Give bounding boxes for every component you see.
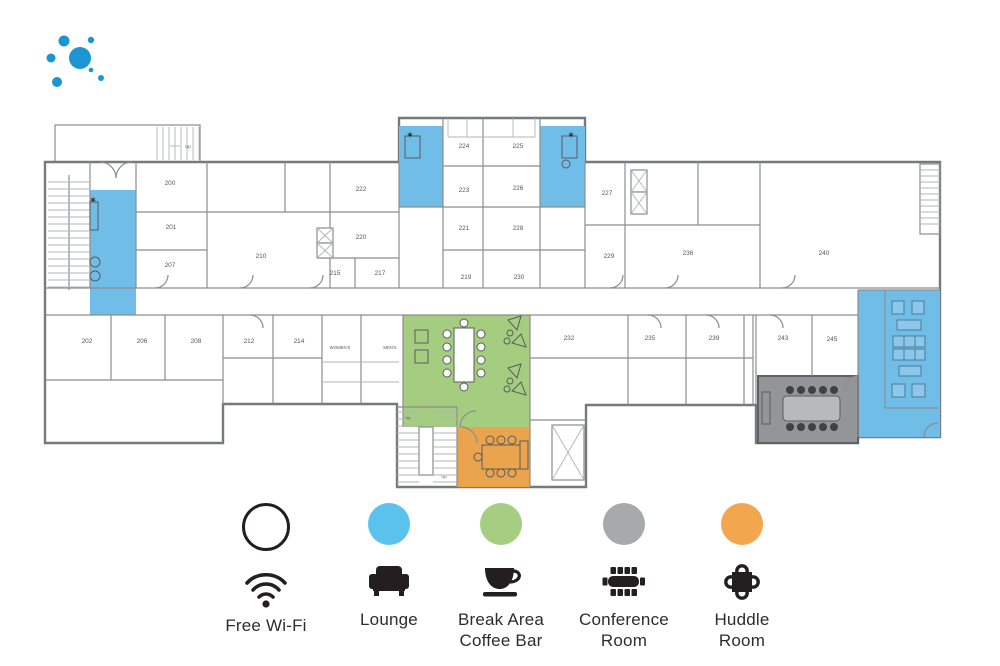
legend-circle-huddle-room — [721, 503, 763, 545]
room-label-219: 219 — [461, 274, 472, 281]
room-label-235: 235 — [645, 335, 656, 342]
room-label-226: 226 — [513, 185, 524, 192]
coffee-cup-icon — [431, 559, 571, 605]
room-label-223: 223 — [459, 187, 470, 194]
office-floor-plan-page: UpUpUpWOMEN'SMEN'S✶✶✶2002012072102222202… — [0, 0, 1000, 666]
legend-label-break-area: Break AreaCoffee Bar — [431, 609, 571, 652]
circle — [786, 423, 794, 431]
legend-circle-conference-room — [603, 503, 645, 545]
logo-dot-5 — [52, 77, 62, 87]
furn-blue — [893, 349, 925, 360]
furn — [460, 383, 468, 391]
plan-text: Up — [405, 415, 411, 420]
plan-text: ✶ — [406, 130, 414, 140]
plan-text: ✶ — [567, 130, 575, 140]
legend-circle-lounge — [368, 503, 410, 545]
plan-text: Up — [185, 144, 191, 149]
furn-blue — [893, 336, 925, 347]
huddle-table-icon — [672, 559, 812, 605]
room-label-236: 236 — [683, 250, 694, 257]
furn — [443, 356, 451, 364]
circle — [808, 423, 816, 431]
room-label-210: 210 — [256, 253, 267, 260]
room-label-225: 225 — [513, 143, 524, 150]
room-label-206: 206 — [137, 338, 148, 345]
room-label-245: 245 — [827, 336, 838, 343]
wall — [55, 125, 200, 162]
furn — [477, 330, 485, 338]
furn-blue — [892, 301, 904, 314]
circle — [797, 423, 805, 431]
furn-blue — [912, 301, 924, 314]
circle — [808, 386, 816, 394]
room-label-202: 202 — [82, 338, 93, 345]
room-label-221: 221 — [459, 225, 470, 232]
legend-item-break-area: Break AreaCoffee Bar — [431, 503, 571, 652]
logo-dot-4 — [89, 68, 94, 73]
circle — [819, 423, 827, 431]
legend-label-huddle-room: HuddleRoom — [672, 609, 812, 652]
room-label-208: 208 — [191, 338, 202, 345]
room-label-222: 222 — [356, 186, 367, 193]
room-label-239: 239 — [709, 335, 720, 342]
wifi-icon — [196, 565, 336, 611]
furn-blue — [899, 366, 921, 376]
legend-item-huddle-room: HuddleRoom — [672, 503, 812, 652]
floor-plan: UpUpUpWOMEN'SMEN'S✶✶✶2002012072102222202… — [0, 0, 1000, 500]
room-label-201: 201 — [166, 224, 177, 231]
rect — [90, 190, 136, 315]
furn — [477, 343, 485, 351]
room-label-228: 228 — [513, 225, 524, 232]
room-label-207: 207 — [165, 262, 176, 269]
plan-text: ✶ — [89, 195, 97, 205]
logo-dot-3 — [88, 37, 94, 43]
circle — [830, 386, 838, 394]
furn-blue — [892, 384, 905, 397]
logo-dot-1 — [59, 36, 70, 47]
plan-text: Up — [441, 474, 447, 479]
logo-dot-6 — [98, 75, 104, 81]
furn — [454, 328, 474, 382]
furn — [443, 369, 451, 377]
room-label-227: 227 — [602, 190, 613, 197]
legend-circle-break-area — [480, 503, 522, 545]
circle — [786, 386, 794, 394]
room-label-224: 224 — [459, 143, 470, 150]
logo — [0, 0, 140, 110]
furn — [443, 343, 451, 351]
room-label-212: 212 — [244, 338, 255, 345]
logo-dot-0 — [69, 47, 91, 69]
plan-text: WOMEN'S — [330, 345, 351, 350]
logo-dot-2 — [47, 54, 56, 63]
room-label-243: 243 — [778, 335, 789, 342]
legend-item-free-wifi: Free Wi-Fi — [196, 503, 336, 636]
rect — [457, 427, 530, 487]
furn — [477, 356, 485, 364]
furn-blue — [897, 320, 921, 330]
circle — [830, 423, 838, 431]
room-label-232: 232 — [564, 335, 575, 342]
room-label-217: 217 — [375, 270, 386, 277]
furn — [477, 369, 485, 377]
room-label-229: 229 — [604, 253, 615, 260]
plan-text: MEN'S — [383, 345, 396, 350]
furn — [783, 396, 840, 421]
room-label-240: 240 — [819, 250, 830, 257]
room-label-200: 200 — [165, 180, 176, 187]
furn-blue — [912, 384, 925, 397]
room-label-214: 214 — [294, 338, 305, 345]
circle — [797, 386, 805, 394]
legend-circle-free-wifi — [242, 503, 290, 551]
room-label-220: 220 — [356, 234, 367, 241]
circle — [819, 386, 827, 394]
furn — [443, 330, 451, 338]
legend-label-free-wifi: Free Wi-Fi — [196, 615, 336, 636]
furn — [460, 319, 468, 327]
room-label-215: 215 — [330, 270, 341, 277]
room-label-230: 230 — [514, 274, 525, 281]
